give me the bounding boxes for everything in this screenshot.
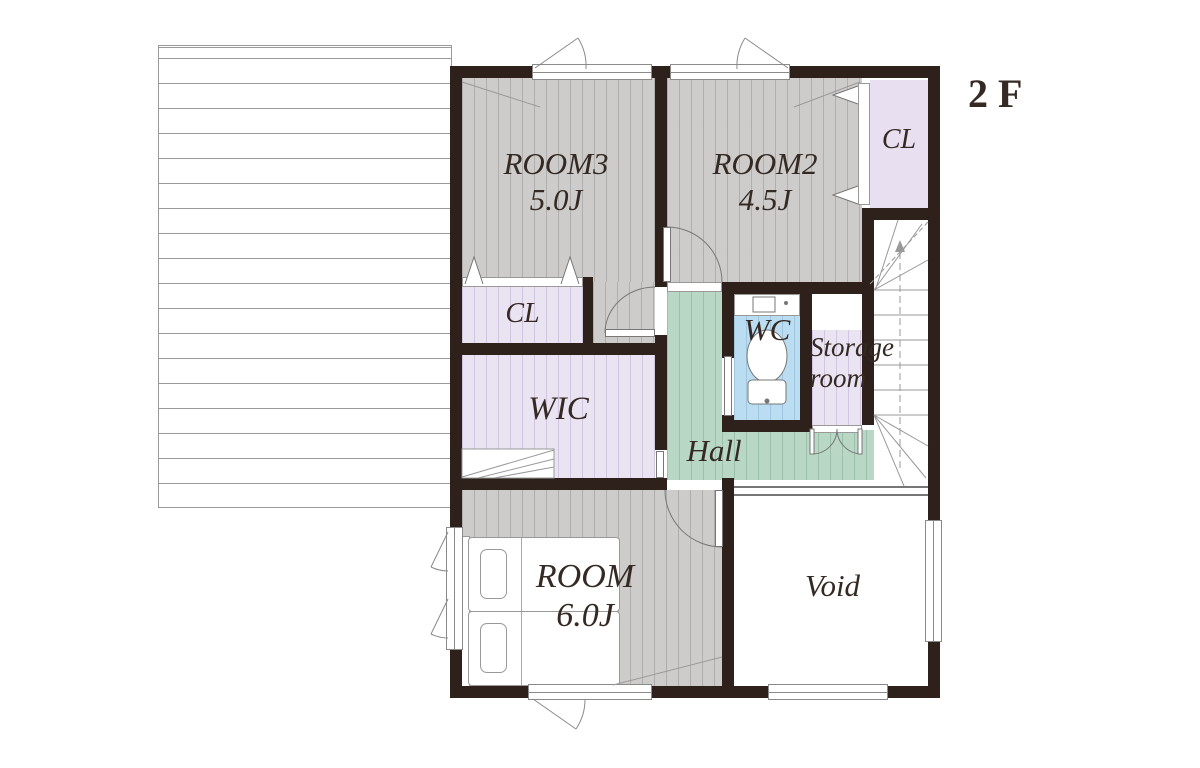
storage-shelf — [812, 294, 862, 330]
room2-label: ROOM2 4.5J — [665, 146, 865, 217]
wc-sliding-door — [724, 356, 732, 416]
wall-segment — [450, 343, 667, 355]
room2-door-threshold — [667, 282, 722, 292]
room1-door-leaf — [715, 490, 723, 547]
window — [528, 684, 652, 700]
closet-top-name: CL — [882, 124, 916, 155]
room1-label: ROOM 6.0J — [475, 557, 695, 635]
floor-plan: ROOM3 5.0J ROOM2 4.5J CL CL WIC WC Stora… — [0, 0, 1200, 768]
wall-segment — [862, 208, 940, 220]
closet-left-label: CL — [462, 298, 583, 330]
wc-name: WC — [744, 312, 791, 347]
storage-name-line2: room — [810, 363, 940, 394]
wall-segment — [722, 420, 812, 432]
room3-size: 5.0J — [456, 182, 656, 218]
wall-segment — [450, 66, 532, 78]
window — [768, 684, 888, 700]
wic-name: WIC — [528, 391, 589, 427]
wall-segment — [450, 66, 462, 527]
storage-name-line1: Storage — [810, 332, 940, 363]
room3-door-leaf — [605, 329, 655, 337]
room3-name: ROOM3 — [456, 146, 656, 182]
closet-top-label: CL — [868, 124, 930, 156]
window — [925, 520, 942, 642]
wall-segment — [462, 478, 667, 490]
wall-segment — [722, 478, 734, 698]
hall-name: Hall — [686, 433, 741, 468]
wall-segment — [652, 686, 768, 698]
void-railing — [734, 486, 928, 496]
wall-segment — [722, 282, 874, 294]
wall-segment — [790, 66, 940, 78]
void-label: Void — [740, 568, 925, 604]
room2-door-leaf — [663, 227, 671, 282]
roof-hatch — [158, 45, 452, 508]
floor-label: 2F — [968, 70, 1032, 117]
wall-segment — [652, 66, 670, 78]
storage-label: Storage room — [810, 332, 940, 394]
floor-label-text: 2F — [968, 71, 1032, 116]
storage-door-track — [812, 425, 862, 433]
closet-left-door-track — [462, 277, 583, 287]
room3-label: ROOM3 5.0J — [456, 146, 656, 217]
room2-size: 4.5J — [665, 182, 865, 218]
window — [446, 527, 463, 650]
window — [670, 64, 790, 80]
closet-left-name: CL — [505, 298, 539, 329]
wc-label: WC — [733, 312, 801, 348]
wall-segment — [928, 642, 940, 698]
wall-segment — [655, 335, 667, 343]
room1-name: ROOM — [475, 557, 695, 596]
void-name: Void — [805, 568, 860, 603]
room2-name: ROOM2 — [665, 146, 865, 182]
wall-segment — [450, 686, 528, 698]
hall-label: Hall — [658, 433, 770, 469]
room1-size: 6.0J — [475, 596, 695, 635]
wic-label: WIC — [462, 391, 655, 429]
window — [532, 64, 652, 80]
